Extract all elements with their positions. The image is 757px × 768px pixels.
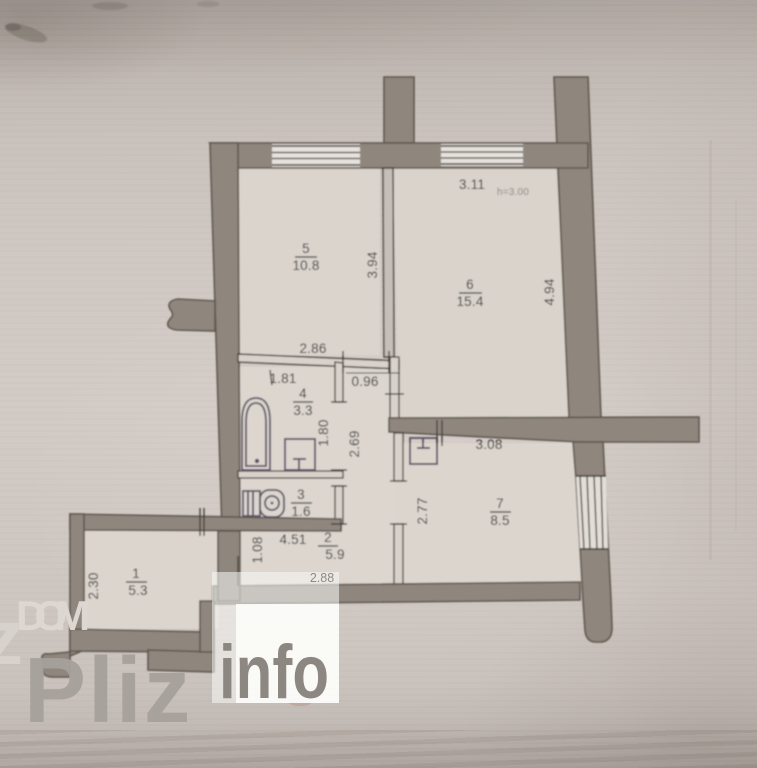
svg-text:z: z xyxy=(0,593,23,681)
svg-text:DOM: DOM xyxy=(16,592,90,639)
svg-text:15.4: 15.4 xyxy=(456,294,483,309)
svg-text:3.08: 3.08 xyxy=(475,437,502,452)
svg-text:1.08: 1.08 xyxy=(250,536,265,563)
svg-text:4.94: 4.94 xyxy=(542,278,557,305)
svg-text:Pliz: Pliz xyxy=(24,638,192,742)
svg-text:1.6: 1.6 xyxy=(291,504,310,519)
svg-text:h=3.00: h=3.00 xyxy=(497,187,529,198)
svg-text:5.3: 5.3 xyxy=(128,583,147,598)
svg-text:5: 5 xyxy=(302,241,310,256)
svg-text:3.11: 3.11 xyxy=(459,177,485,192)
svg-text:10.8: 10.8 xyxy=(292,258,319,273)
svg-text:6: 6 xyxy=(466,277,474,292)
svg-text:1.80: 1.80 xyxy=(316,419,331,446)
svg-text:0.96: 0.96 xyxy=(351,374,378,389)
svg-text:2.86: 2.86 xyxy=(299,341,326,356)
svg-text:4: 4 xyxy=(299,386,307,401)
svg-text:3: 3 xyxy=(297,487,305,502)
svg-text:2: 2 xyxy=(324,530,332,545)
svg-text:info: info xyxy=(219,630,329,715)
svg-text:1.81: 1.81 xyxy=(269,371,296,386)
svg-text:2.88: 2.88 xyxy=(310,571,334,585)
svg-text:2.77: 2.77 xyxy=(415,497,430,524)
svg-text:3.3: 3.3 xyxy=(293,403,312,418)
svg-text:1: 1 xyxy=(132,566,140,581)
svg-text:2.69: 2.69 xyxy=(347,430,362,457)
svg-text:4.51: 4.51 xyxy=(279,532,306,547)
svg-text:3.94: 3.94 xyxy=(365,251,380,278)
svg-text:5.9: 5.9 xyxy=(325,547,344,562)
svg-text:8.5: 8.5 xyxy=(490,513,509,528)
svg-text:7: 7 xyxy=(496,496,504,511)
